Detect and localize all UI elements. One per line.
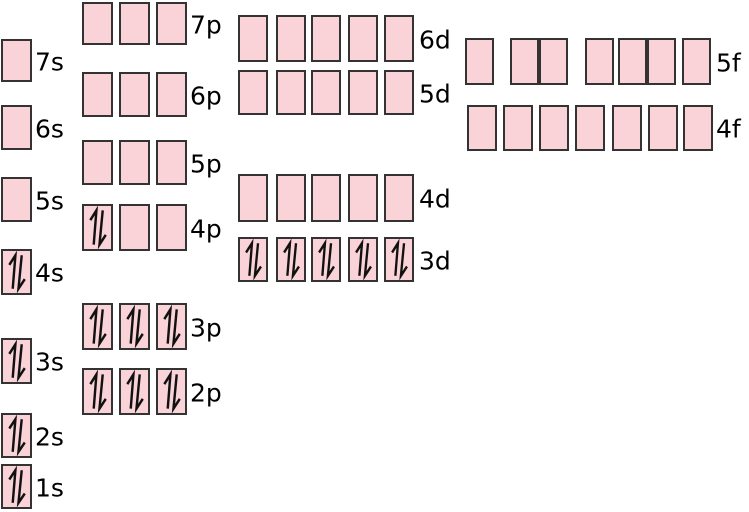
electron-pair-icon [84,206,111,249]
orbital-box-3d-5 [384,237,414,282]
orbital-box-4p-2 [119,204,150,251]
orbital-label-2s: 2s [35,424,64,449]
orbital-box-4f-1 [467,105,497,151]
spin-down-arrow-icon [18,419,24,452]
orbital-box-5f-3 [539,38,568,85]
orbital-box-6s-1 [1,105,32,150]
orbital-box-4f-2 [503,105,533,151]
spin-down-arrow-icon [328,243,334,276]
orbital-box-5f-5 [618,38,647,85]
orbital-label-7p: 7p [190,12,222,37]
orbital-box-3s-1 [1,338,32,384]
spin-up-arrow-icon [356,243,362,276]
electron-pair-icon [84,370,111,413]
spin-up-arrow-icon [164,374,170,408]
orbital-box-6d-4 [348,15,378,62]
electron-pair-icon [158,370,185,413]
spin-down-arrow-icon [18,470,24,503]
spin-up-arrow-icon [246,243,252,276]
orbital-box-5d-3 [311,70,341,115]
orbital-box-6d-5 [384,15,414,62]
orbital-box-2p-1 [82,368,113,415]
orbital-label-3p: 3p [190,315,222,340]
spin-down-arrow-icon [99,309,105,343]
spin-up-arrow-icon [90,309,96,343]
orbital-box-5p-1 [82,140,113,185]
orbital-box-6d-3 [311,15,341,62]
orbital-label-4d: 4d [419,187,451,212]
orbital-label-5s: 5s [35,188,64,213]
spin-up-arrow-icon [9,344,15,377]
spin-up-arrow-icon [9,255,15,288]
electron-pair-icon [278,239,304,280]
orbital-label-6p: 6p [190,83,222,108]
orbital-box-5f-4 [585,38,614,85]
orbital-box-7p-3 [156,2,187,45]
orbital-label-6d: 6d [419,27,451,52]
electron-pair-icon [350,239,376,280]
orbital-box-3d-1 [238,237,268,282]
orbital-box-5p-3 [156,140,187,185]
orbital-label-2p: 2p [190,380,222,405]
electron-pair-icon [3,466,30,507]
spin-down-arrow-icon [173,309,179,343]
orbital-box-4d-3 [311,174,341,222]
orbital-box-5f-7 [682,38,711,85]
spin-down-arrow-icon [136,374,142,408]
orbital-box-7s-1 [1,39,32,82]
orbital-box-4f-4 [575,105,605,151]
spin-down-arrow-icon [136,309,142,343]
orbital-box-6p-3 [156,72,187,117]
electron-pair-icon [121,370,148,413]
electron-pair-icon [84,305,111,348]
orbital-box-5d-5 [384,70,414,115]
electron-pair-icon [240,239,266,280]
spin-up-arrow-icon [90,374,96,408]
orbital-label-7s: 7s [35,49,64,74]
electron-pair-icon [121,305,148,348]
orbital-label-5p: 5p [190,151,222,176]
orbital-box-4f-5 [612,105,642,151]
orbital-label-5f: 5f [716,50,741,75]
spin-down-arrow-icon [365,243,371,276]
electron-pair-icon [386,239,412,280]
orbital-box-2s-1 [1,413,32,458]
orbital-diagram: 1s2s2p3s3p4s3d4p5s4d5p6s4f5d6p7s5f6d7p [0,0,749,512]
orbital-label-1s: 1s [35,475,64,500]
spin-up-arrow-icon [127,374,133,408]
spin-down-arrow-icon [18,255,24,288]
orbital-label-5d: 5d [419,81,451,106]
spin-up-arrow-icon [392,243,398,276]
electron-pair-icon [3,340,30,382]
orbital-box-4p-3 [156,204,187,251]
spin-down-arrow-icon [293,243,299,276]
electron-pair-icon [313,239,339,280]
orbital-box-2p-2 [119,368,150,415]
orbital-box-6p-1 [82,72,113,117]
orbital-label-4p: 4p [190,216,222,241]
orbital-box-4d-5 [384,174,414,222]
orbital-box-5p-2 [119,140,150,185]
orbital-label-3s: 3s [35,350,64,375]
orbital-box-7p-1 [82,2,113,45]
spin-down-arrow-icon [401,243,407,276]
orbital-box-5d-1 [238,70,268,115]
spin-up-arrow-icon [284,243,290,276]
spin-up-arrow-icon [90,210,96,244]
orbital-box-6d-2 [276,15,306,62]
spin-down-arrow-icon [255,243,261,276]
spin-down-arrow-icon [18,344,24,377]
orbital-box-5f-6 [647,38,676,85]
orbital-box-5s-1 [1,177,32,222]
orbital-box-6p-2 [119,72,150,117]
orbital-box-5f-1 [465,38,494,85]
spin-down-arrow-icon [99,374,105,408]
orbital-box-5f-2 [510,38,539,85]
orbital-label-6s: 6s [35,116,64,141]
orbital-box-4d-4 [348,174,378,222]
orbital-box-3p-3 [156,303,187,350]
spin-down-arrow-icon [99,210,105,244]
orbital-box-5d-2 [276,70,306,115]
spin-down-arrow-icon [173,374,179,408]
orbital-box-3d-4 [348,237,378,282]
spin-up-arrow-icon [319,243,325,276]
spin-up-arrow-icon [127,309,133,343]
orbital-box-6d-1 [238,15,268,62]
orbital-box-7p-2 [119,2,150,45]
spin-up-arrow-icon [9,470,15,503]
electron-pair-icon [3,251,30,293]
orbital-box-3d-2 [276,237,306,282]
orbital-box-4d-2 [276,174,306,222]
orbital-box-2p-3 [156,368,187,415]
orbital-label-4f: 4f [716,117,741,142]
electron-pair-icon [3,415,30,456]
orbital-box-4f-7 [683,105,713,151]
orbital-box-4f-6 [648,105,678,151]
spin-up-arrow-icon [9,419,15,452]
orbital-label-4s: 4s [35,261,64,286]
orbital-box-3p-2 [119,303,150,350]
orbital-box-3p-1 [82,303,113,350]
electron-pair-icon [158,305,185,348]
orbital-box-4p-1 [82,204,113,251]
orbital-box-3d-3 [311,237,341,282]
orbital-label-3d: 3d [419,248,451,273]
orbital-box-5d-4 [348,70,378,115]
orbital-box-1s-1 [1,464,32,509]
orbital-box-4d-1 [238,174,268,222]
spin-up-arrow-icon [164,309,170,343]
orbital-box-4f-3 [539,105,569,151]
orbital-box-4s-1 [1,249,32,295]
